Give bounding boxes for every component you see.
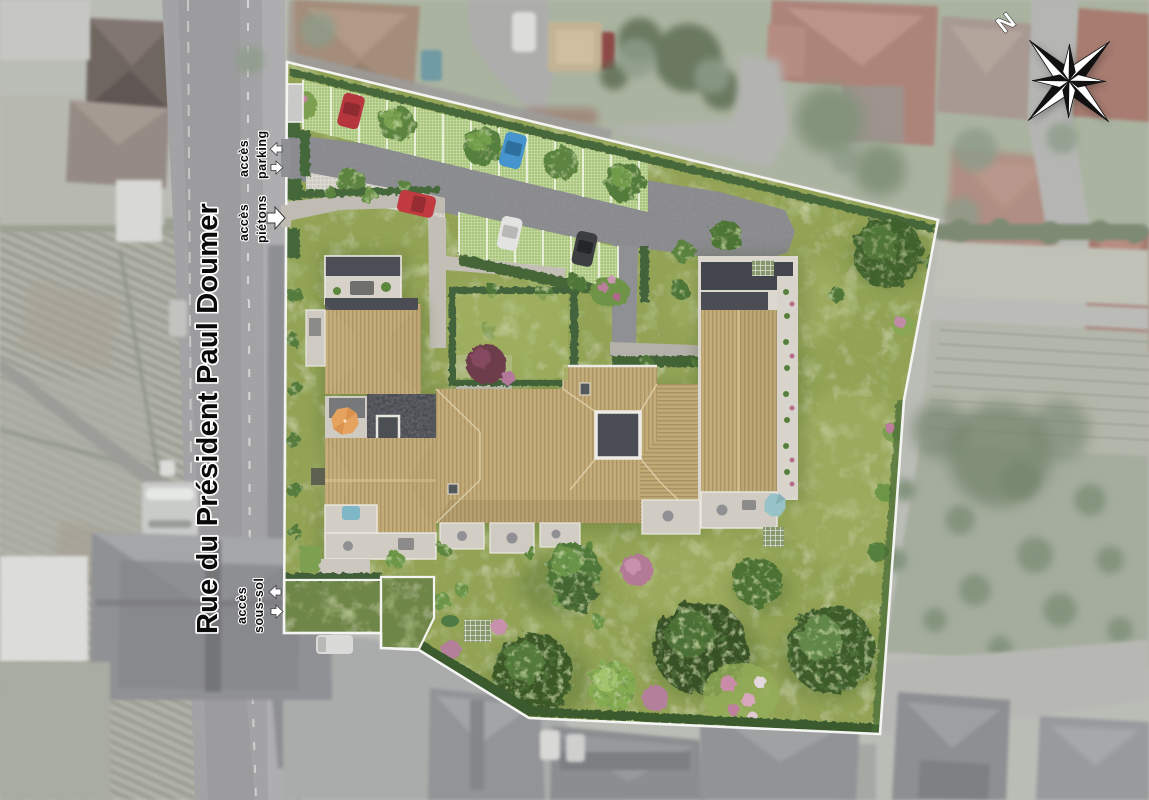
- svg-text:Rue du Président Paul Doumer: Rue du Président Paul Doumer: [192, 203, 224, 634]
- svg-text:accès: accès: [237, 204, 251, 241]
- svg-text:accès: accès: [237, 140, 251, 177]
- svg-text:accès: accès: [235, 587, 249, 624]
- svg-text:parking: parking: [255, 130, 269, 179]
- svg-text:sous-sol: sous-sol: [252, 578, 266, 633]
